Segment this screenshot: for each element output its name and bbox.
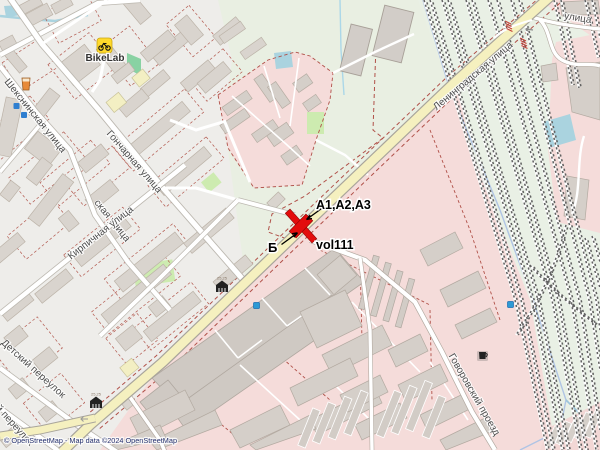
svg-text:Б: Б xyxy=(268,240,277,255)
svg-text:25,25: 25,25 xyxy=(91,392,102,397)
svg-text:25,25: 25,25 xyxy=(217,276,228,281)
svg-text:А1,А2,А3: А1,А2,А3 xyxy=(316,198,371,212)
svg-text:BikeLab: BikeLab xyxy=(86,53,125,64)
svg-text:vol111: vol111 xyxy=(316,238,354,252)
svg-text:© OpenStreetMap - Map data ©20: © OpenStreetMap - Map data ©2024 OpenStr… xyxy=(4,436,177,445)
